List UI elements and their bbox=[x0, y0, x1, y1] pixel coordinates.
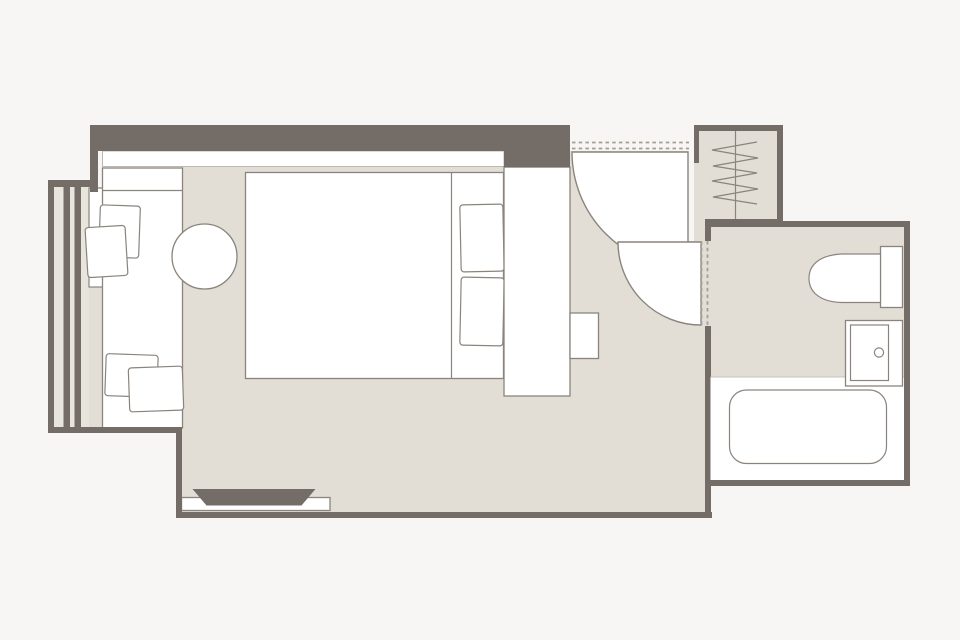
wall-top-extension bbox=[504, 151, 570, 168]
bathtub bbox=[730, 390, 887, 464]
wall-closet-top bbox=[694, 125, 783, 131]
window-ledge bbox=[103, 151, 505, 167]
coffee-table bbox=[172, 224, 237, 289]
bed-pillow bbox=[460, 204, 504, 272]
toilet-bowl bbox=[809, 254, 881, 303]
nightstand bbox=[570, 313, 599, 359]
lounge-cushion bbox=[85, 225, 128, 277]
wall-left-lower bbox=[176, 427, 182, 518]
floor-plan bbox=[0, 0, 960, 640]
lounge-cushion bbox=[128, 366, 184, 412]
louver-panel bbox=[54, 187, 89, 427]
wall-bathroom-right bbox=[904, 221, 910, 486]
wall-balcony-top bbox=[48, 180, 98, 187]
wall-top-main bbox=[97, 125, 570, 151]
double-bed bbox=[246, 173, 504, 379]
window-louvers bbox=[54, 187, 89, 427]
toilet-tank bbox=[881, 247, 903, 308]
tv bbox=[193, 489, 316, 506]
washbasin-drain bbox=[874, 348, 883, 357]
entry-wall-gap bbox=[688, 151, 694, 241]
closet-floor bbox=[699, 131, 777, 219]
bed-pillow bbox=[460, 277, 504, 346]
wall-bottom-main bbox=[176, 512, 712, 518]
wall-closet-right bbox=[777, 125, 783, 227]
wall-balcony-bottom bbox=[48, 427, 182, 433]
louver-slat bbox=[64, 187, 71, 427]
wall-balcony-left bbox=[48, 180, 54, 433]
wall-bathroom-bottom bbox=[705, 480, 910, 486]
floor-plan-canvas bbox=[0, 0, 960, 640]
wall-closet-left bbox=[694, 125, 699, 163]
wardrobe bbox=[504, 167, 570, 396]
wall-closet-bottom bbox=[705, 219, 783, 227]
louver-slat bbox=[75, 187, 82, 427]
